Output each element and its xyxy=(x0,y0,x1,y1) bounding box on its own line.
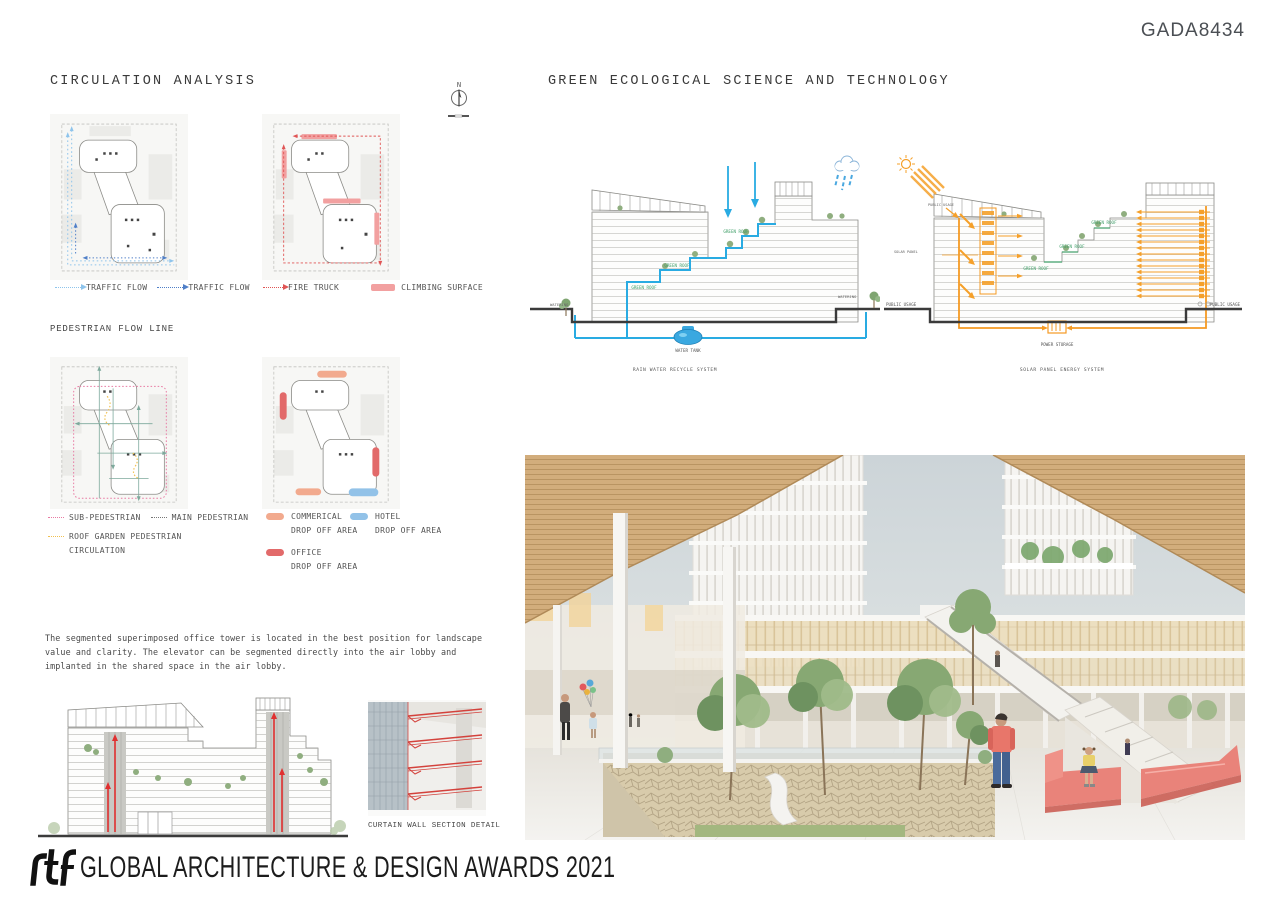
curtain-wall-caption: CURTAIN WALL SECTION DETAIL xyxy=(368,822,508,830)
curtain-wall-detail-image xyxy=(368,700,486,816)
legend-label: FIRE TRUCK xyxy=(288,283,339,292)
legend-label: ROOF GARDEN PEDESTRIAN xyxy=(69,532,182,541)
legend-label: MAIN PEDESTRIAN xyxy=(172,513,249,522)
green-tech-title: GREEN ECOLOGICAL SCIENCE AND TECHNOLOGY xyxy=(548,74,950,89)
board-code: GADA8434 xyxy=(1141,20,1245,42)
presentation-board: GADA8434 CIRCULATION ANALYSIS N xyxy=(0,0,1273,900)
solar-caption: SOLAR PANEL ENERGY SYSTEM xyxy=(1020,367,1104,373)
circulation-title: CIRCULATION ANALYSIS xyxy=(50,74,256,89)
public-usage-top-label: PUBLIC USAGE xyxy=(928,203,954,207)
solar-panel-diagram: GREEN ROOF GREEN ROOF GREEN ROOF PUBLIC … xyxy=(884,150,1242,380)
pedestrian-flow-title: PEDESTRIAN FLOW LINE xyxy=(50,324,174,334)
water-tank-label: WATER TANK xyxy=(675,348,701,353)
legend-label: TRAFFIC FLOW xyxy=(86,283,147,292)
rtf-logo xyxy=(30,847,76,887)
traffic-flow-light-icon xyxy=(55,287,81,288)
site-plan-pedestrian xyxy=(50,357,188,509)
site-plan-fire-truck xyxy=(262,114,400,280)
green-roof-label: GREEN ROOF xyxy=(664,263,690,268)
office-pill-icon xyxy=(266,549,284,556)
legend-fire: FIRE TRUCK CLIMBING SURFACE xyxy=(263,283,493,292)
hotel-pill-icon xyxy=(350,513,368,520)
main-pedestrian-line-icon xyxy=(151,517,167,518)
legend-hotel: HOTEL DROP OFF AREA xyxy=(350,512,442,535)
legend-label: COMMERICAL xyxy=(291,512,342,521)
legend-label: TRAFFIC FLOW xyxy=(188,283,249,292)
description-paragraph: The segmented superimposed office tower … xyxy=(45,632,490,674)
roof-garden-line-icon xyxy=(48,536,64,537)
watering-label: WATERING xyxy=(838,294,857,299)
north-compass-icon: N xyxy=(443,78,475,122)
awards-title: GLOBAL ARCHITECTURE & DESIGN AWARDS 2021 xyxy=(80,851,615,885)
rain-caption: RAIN WATER RECYCLE SYSTEM xyxy=(633,367,717,373)
traffic-flow-dark-icon xyxy=(157,287,183,288)
legend-label: DROP OFF AREA xyxy=(375,526,442,535)
public-usage-left-label: PUBLIC USAGE xyxy=(886,302,917,307)
legend-label: DROP OFF AREA xyxy=(291,562,358,571)
watering-label: WATERING xyxy=(550,302,569,307)
legend-pedestrian-group: SUB-PEDESTRIAN MAIN PEDESTRIAN ROOF GARD… xyxy=(48,513,258,555)
solar-panel-label: SOLAR PANEL xyxy=(894,250,918,254)
legend-office: OFFICE DROP OFF AREA xyxy=(266,548,358,571)
public-usage-right-label: PUBLIC USAGE xyxy=(1210,302,1241,307)
legend-label: HOTEL xyxy=(375,512,401,521)
legend-label: OFFICE xyxy=(291,548,322,557)
commerical-pill-icon xyxy=(266,513,284,520)
plaza-rendering-image xyxy=(525,455,1245,840)
green-roof-label: GREEN ROOF xyxy=(1023,266,1049,271)
green-roof-label: GREEN ROOF xyxy=(723,229,749,234)
green-roof-label: GREEN ROOF xyxy=(1059,244,1085,249)
site-plan-traffic-flow xyxy=(50,114,188,280)
legend-traffic: TRAFFIC FLOW TRAFFIC FLOW xyxy=(55,283,260,292)
legend-label: CIRCULATION xyxy=(69,546,125,555)
compass-n-label: N xyxy=(457,81,461,89)
climbing-surface-swatch xyxy=(371,284,395,291)
sub-pedestrian-line-icon xyxy=(48,517,64,518)
rain-water-diagram: GREEN ROOF GREEN ROOF GREEN ROOF WATERIN… xyxy=(530,150,880,380)
legend-label: CLIMBING SURFACE xyxy=(401,283,483,292)
green-roof-label: GREEN ROOF xyxy=(1091,220,1117,225)
fire-truck-line-icon xyxy=(263,287,283,288)
legend-commerical: COMMERICAL DROP OFF AREA xyxy=(266,512,358,535)
site-plan-dropoff xyxy=(262,357,400,509)
elevator-section-diagram xyxy=(38,686,348,846)
legend-label: SUB-PEDESTRIAN xyxy=(69,513,141,522)
legend-label: DROP OFF AREA xyxy=(291,526,358,535)
power-storage-label: POWER STORAGE xyxy=(1041,342,1074,347)
green-roof-label: GREEN ROOF xyxy=(631,285,657,290)
